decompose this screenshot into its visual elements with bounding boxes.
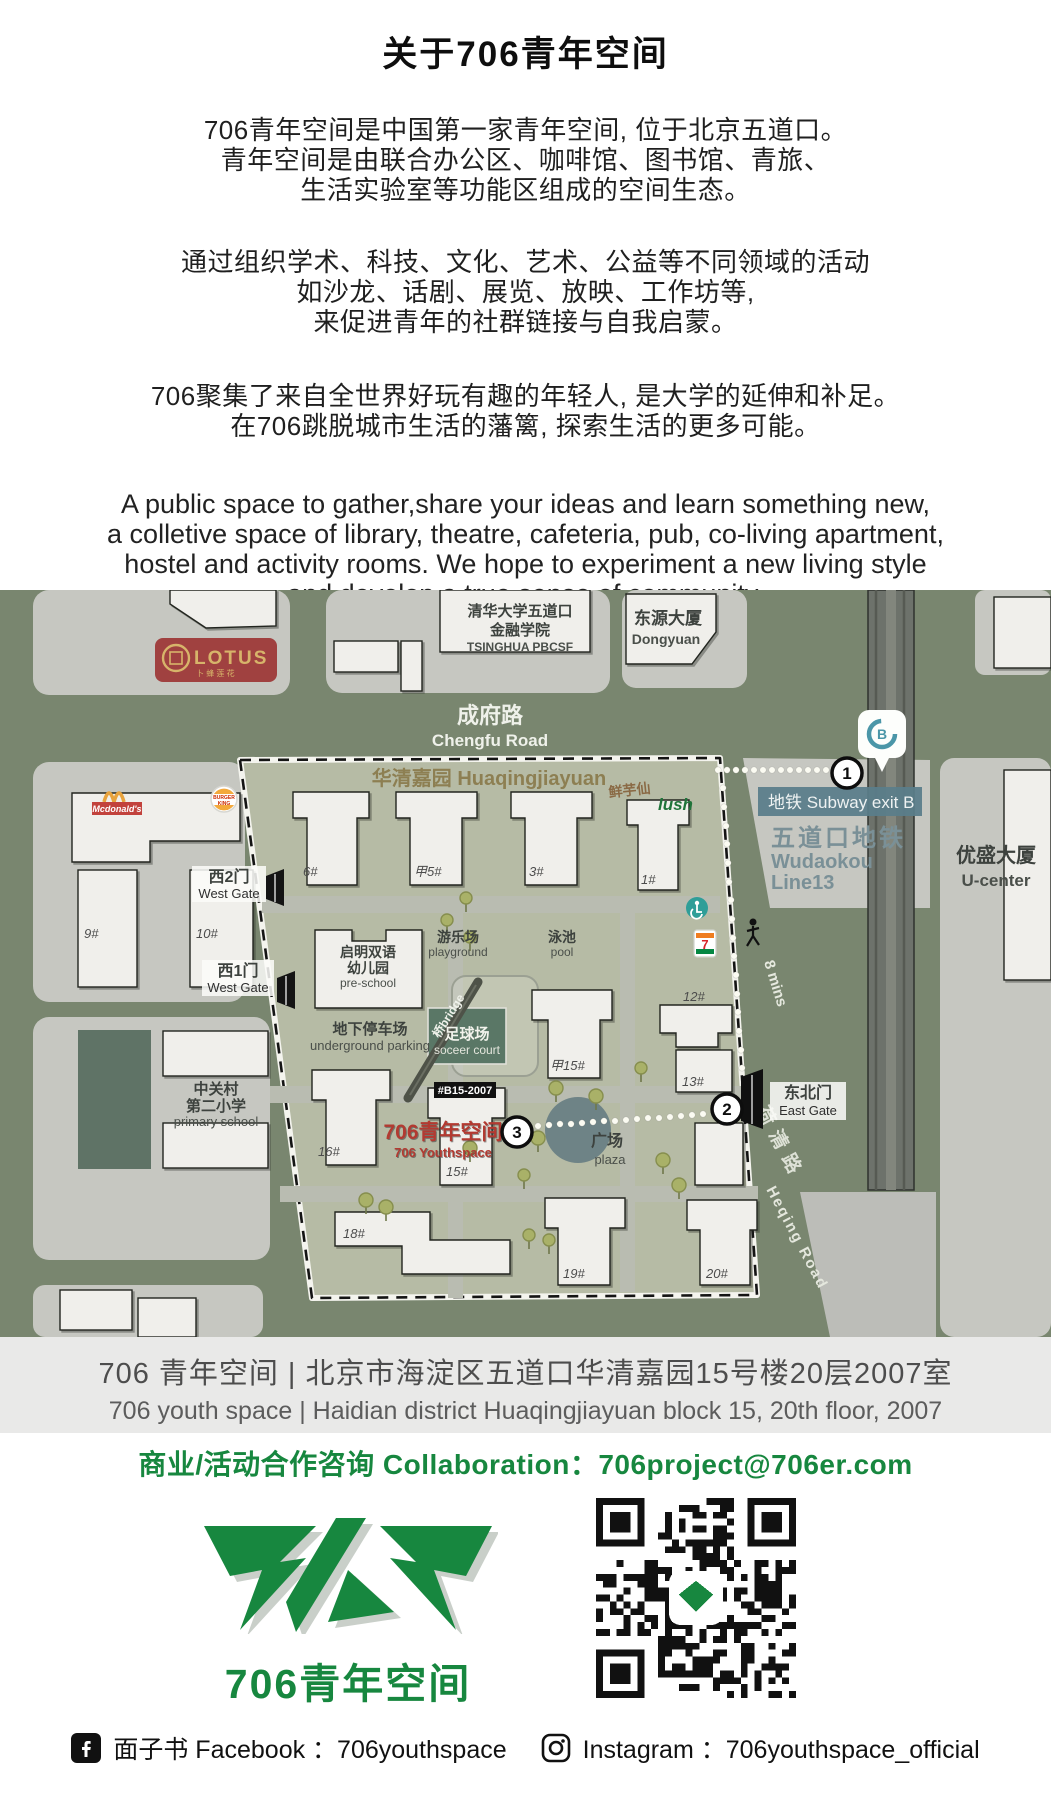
tsinghua-line1: 清华大学五道口 — [467, 602, 572, 620]
about-section: 关于706青年空间 706青年空间是中国第一家青年空间, 位于北京五道口。 青年… — [0, 0, 1051, 609]
qr-code-graphic — [596, 1494, 796, 1702]
instagram-icon — [541, 1733, 571, 1763]
label-1: 1# — [641, 872, 656, 887]
label-6: 6# — [303, 864, 318, 879]
label-10: 10# — [196, 926, 218, 941]
paragraph-community: 706聚集了来自全世界好玩有趣的年轻人, 是大学的延伸和补足。 在706跳脱城市… — [0, 381, 1051, 441]
destination-name-zh: 706青年空间 — [383, 1120, 502, 1144]
preschool-line1: 启明双语 — [340, 944, 396, 960]
tsinghua-line2: 金融学院 — [489, 621, 550, 639]
school-line3: primary school — [174, 1114, 259, 1129]
east-gate-en: East Gate — [779, 1103, 837, 1118]
soccer-label-zh: 足球场 — [444, 1025, 489, 1043]
accessibility-icon — [686, 897, 708, 919]
parking-label-zh: 地下停车场 — [332, 1020, 407, 1038]
building-tsinghua-a — [334, 641, 398, 672]
preschool-line2: 幼儿园 — [347, 960, 389, 976]
label-20: 20# — [705, 1266, 728, 1281]
lotus-subtext: 卜 蜂 莲 花 — [196, 668, 235, 678]
lush-logo: lush — [658, 795, 693, 814]
label-18: 18# — [343, 1226, 365, 1241]
plaza-label-zh: 广场 — [591, 1131, 623, 1150]
logo-706 — [198, 1512, 498, 1634]
railway-track — [868, 590, 914, 1190]
label-3: 3# — [529, 864, 544, 879]
ucenter-label-zh: 优盛大厦 — [956, 843, 1037, 867]
text-line: 青年空间是由联合办公区、咖啡馆、图书馆、青旅、 — [0, 145, 1051, 175]
plaza-label-en: plaza — [594, 1152, 626, 1167]
address-line-zh: 706 青年空间 | 北京市海淀区五道口华清嘉园15号楼20层2007室 — [0, 1337, 1051, 1392]
text-line: a colletive space of library, theatre, c… — [0, 519, 1051, 549]
marker-3: 3 — [502, 1117, 532, 1147]
text-line: 如沙龙、话剧、展览、放映、工作坊等, — [0, 277, 1051, 307]
label-15: 15# — [446, 1164, 468, 1179]
marker-3-number: 3 — [512, 1123, 521, 1142]
building-bottomleft-b — [138, 1298, 196, 1337]
text-line: hostel and activity rooms. We hope to ex… — [0, 549, 1051, 579]
east-gate-zh: 东北门 — [784, 1083, 832, 1102]
marker-2-number: 2 — [722, 1100, 731, 1119]
west-gate2-zh: 西2门 — [209, 867, 250, 886]
wudaokou-label-zh: 五道口地铁 — [771, 824, 906, 852]
soccer-label-en: soceer court — [434, 1043, 501, 1057]
location-map: 桥bridge — [0, 590, 1051, 1337]
school-line1: 中关村 — [193, 1080, 238, 1098]
label-16: 16# — [318, 1144, 340, 1159]
burger-king-icon: BURGER KING — [211, 786, 237, 812]
instagram-handle: Instagram ：706youthspace_official — [583, 1730, 980, 1766]
pool-label-en: pool — [551, 945, 574, 959]
building-unlabeled-se — [695, 1123, 743, 1185]
school-line2: 第二小学 — [186, 1097, 246, 1115]
mcdonalds-text: Mcdonald's — [92, 804, 141, 814]
address-bar: 706 青年空间 | 北京市海淀区五道口华清嘉园15号楼20层2007室 706… — [0, 1337, 1051, 1433]
lotus-text: LOTUS — [194, 648, 268, 669]
label-15a: 甲15# — [550, 1058, 585, 1073]
destination-name-en: 706 Youthspace — [394, 1145, 492, 1160]
chengfu-road-label-en: Chengfu Road — [432, 731, 548, 750]
text-line: 来促进青年的社群链接与自我启蒙。 — [0, 307, 1051, 337]
logo-caption: 706青年空间 — [148, 1650, 548, 1710]
address-line-en: 706 youth space | Haidian district Huaqi… — [0, 1397, 1051, 1426]
school-field — [78, 1030, 151, 1169]
subway-pin-letter: B — [877, 726, 887, 742]
huaqing-label: 华清嘉园 Huaqingjiayuan — [372, 766, 606, 790]
text-line: 706青年空间是中国第一家青年空间, 位于北京五道口。 — [0, 115, 1051, 145]
building-topright — [994, 597, 1051, 668]
parking-label-en: underground parking — [310, 1038, 430, 1053]
building-school-a — [163, 1031, 268, 1076]
text-line: A public space to gather,share your idea… — [0, 489, 1051, 519]
seven-eleven-text: 7 — [701, 937, 708, 952]
text-line: 生活实验室等功能区组成的空间生态。 — [0, 175, 1051, 205]
label-9: 9# — [84, 926, 99, 941]
preschool-label: 启明双语 幼儿园 pre-school — [340, 944, 396, 990]
playground-label-en: playground — [428, 945, 487, 959]
map-canvas: 桥bridge — [0, 590, 1051, 1337]
tsinghua-line3: TSINGHUA PBCSF — [467, 640, 573, 654]
wudaokou-label-en: Wudaokou — [771, 851, 873, 873]
label-13: 13# — [682, 1074, 704, 1089]
marker-1: 1 — [832, 758, 862, 788]
label-12: 12# — [683, 989, 705, 1004]
poster-page: 关于706青年空间 706青年空间是中国第一家青年空间, 位于北京五道口。 青年… — [0, 0, 1051, 1800]
text-line: 在706跳脱城市生活的藩篱, 探索生活的更多可能。 — [0, 411, 1051, 441]
logo-706-graphic — [198, 1512, 498, 1634]
building-bottomleft-a — [60, 1290, 132, 1330]
subway-exit-label: 地铁 Subway exit B — [768, 793, 914, 812]
label-5a: 甲5# — [414, 864, 442, 879]
building-school-b — [163, 1123, 268, 1168]
page-title: 关于706青年空间 — [0, 26, 1051, 77]
preschool-line3: pre-school — [340, 976, 396, 990]
paragraph-activities: 通过组织学术、科技、文化、艺术、公益等不同领域的活动 如沙龙、话剧、展览、放映、… — [0, 247, 1051, 337]
pool-label-zh: 泳池 — [548, 929, 576, 945]
text-line: 706聚集了来自全世界好玩有趣的年轻人, 是大学的延伸和补足。 — [0, 381, 1051, 411]
west-gate2-en: West Gate — [198, 886, 259, 901]
seven-eleven-icon: 7 — [694, 930, 716, 957]
text-line: 通过组织学术、科技、文化、艺术、公益等不同领域的活动 — [0, 247, 1051, 277]
building-tsinghua-b — [401, 641, 422, 691]
dongyuan-label-zh: 东源大厦 — [634, 608, 703, 628]
paragraph-intro: 706青年空间是中国第一家青年空间, 位于北京五道口。 青年空间是由联合办公区、… — [0, 115, 1051, 205]
wechat-qr-code — [596, 1494, 796, 1702]
facebook-item: 面子书 Facebook ：706youthspace — [71, 1730, 506, 1766]
collaboration-contact: 商业/活动合作咨询 Collaboration：706project@706er… — [0, 1443, 1051, 1483]
chengfu-road-label-zh: 成府路 — [457, 703, 524, 728]
facebook-handle: 面子书 Facebook ：706youthspace — [113, 1730, 506, 1766]
dongyuan-label-en: Dongyuan — [632, 631, 700, 647]
burger-king-text2: KING — [218, 801, 231, 807]
playground-label-zh: 游乐场 — [437, 929, 479, 945]
marker-1-number: 1 — [842, 764, 851, 783]
label-19: 19# — [563, 1266, 585, 1281]
lotus-logo: LOTUS 卜 蜂 莲 花 — [155, 638, 277, 682]
b15-tag: #B15-2007 — [438, 1085, 492, 1097]
line13-label: Line13 — [771, 872, 834, 894]
facebook-icon — [71, 1733, 101, 1763]
marker-2: 2 — [712, 1094, 742, 1124]
instagram-item: Instagram ：706youthspace_official — [541, 1730, 980, 1766]
ucenter-label-en: U-center — [962, 871, 1031, 890]
social-footer: 面子书 Facebook ：706youthspace Instagram ：7… — [0, 1730, 1051, 1766]
west-gate1-zh: 西1门 — [218, 961, 259, 980]
west-gate1-en: West Gate — [207, 980, 268, 995]
